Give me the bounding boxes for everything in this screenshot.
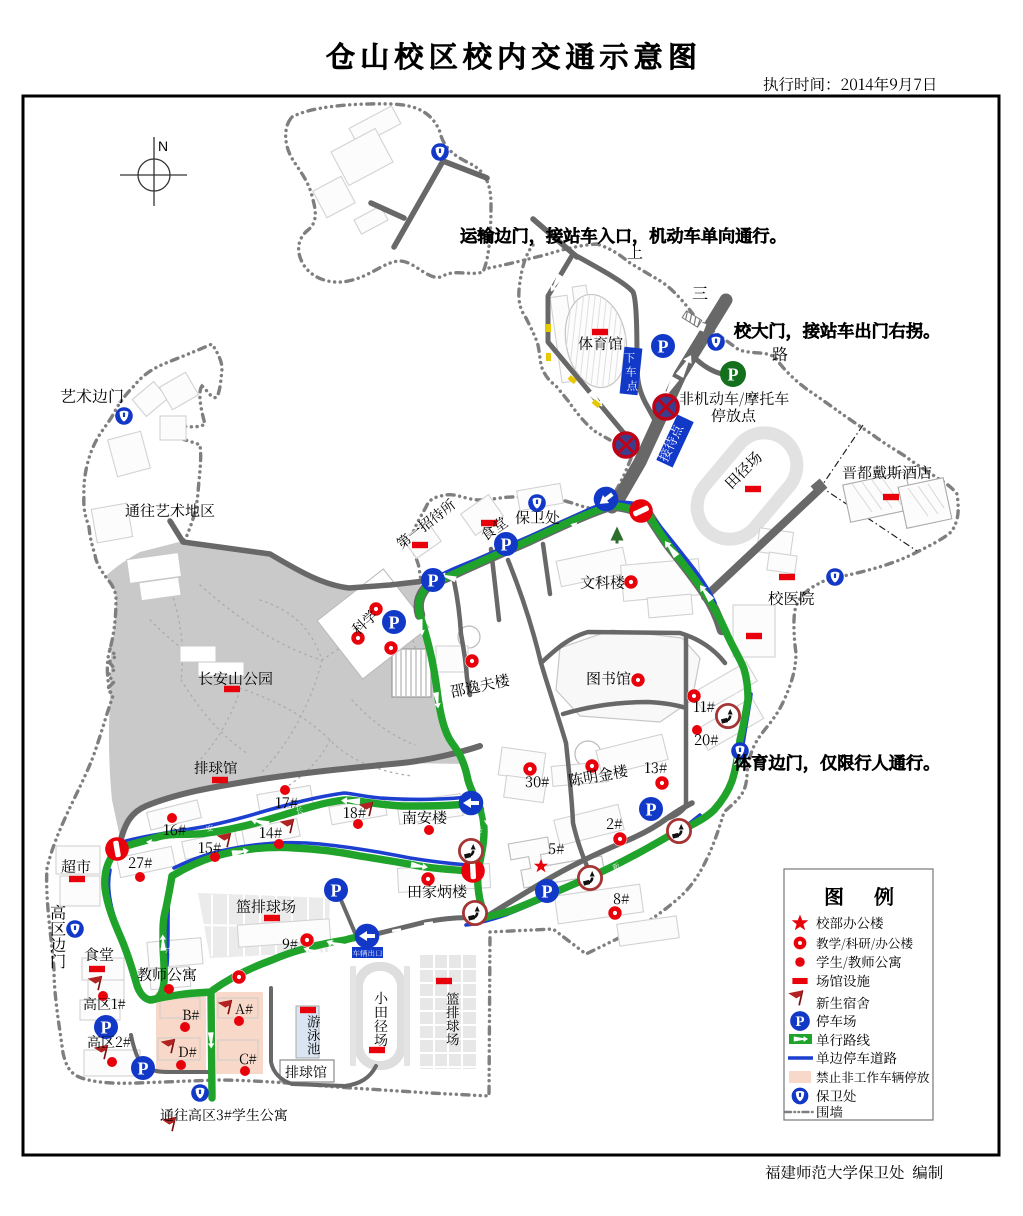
svg-text:N: N [158, 138, 168, 154]
